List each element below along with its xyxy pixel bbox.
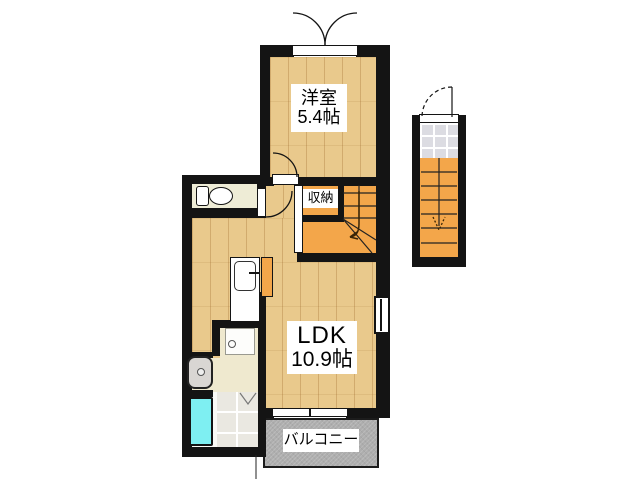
exterior-stairs-floor bbox=[420, 158, 458, 257]
wall bbox=[182, 175, 266, 184]
bathtub-icon bbox=[189, 397, 213, 446]
landing-floor bbox=[265, 183, 295, 218]
exterior-stair-wall bbox=[412, 115, 420, 266]
ldk-window-mullion bbox=[380, 299, 382, 331]
exterior-landing-tiles bbox=[420, 123, 458, 158]
closet-name: 収納 bbox=[307, 191, 333, 205]
exterior-stair-wall bbox=[458, 115, 466, 266]
wall bbox=[298, 177, 390, 186]
wall bbox=[182, 447, 266, 457]
closet-label: 収納 bbox=[303, 189, 338, 208]
western-room-label: 洋室 5.4帖 bbox=[291, 84, 347, 132]
wall bbox=[376, 45, 390, 418]
floorplan-canvas: 洋室 5.4帖 収納 LDK 10.9帖 バルコニー bbox=[0, 0, 640, 480]
french-door-threshold bbox=[292, 45, 358, 56]
ldk-size: 10.9帖 bbox=[291, 349, 353, 372]
balcony-label: バルコニー bbox=[283, 429, 359, 452]
kitchen-counter bbox=[261, 257, 273, 297]
entry-door-threshold bbox=[419, 114, 459, 123]
closet-sliding-door bbox=[294, 185, 303, 253]
western-room-name: 洋室 bbox=[301, 89, 337, 108]
wall bbox=[303, 215, 343, 222]
wall bbox=[297, 253, 390, 262]
washer-drain-icon bbox=[228, 340, 236, 348]
exterior-stair-wall bbox=[412, 257, 466, 267]
wall bbox=[182, 208, 266, 218]
balcony-name: バルコニー bbox=[284, 432, 359, 448]
wall bbox=[182, 390, 213, 397]
kitchen-sink-icon bbox=[234, 261, 256, 291]
western-room-size: 5.4帖 bbox=[297, 108, 340, 127]
entry-door-arc bbox=[422, 87, 452, 117]
bathroom-tile-floor bbox=[217, 392, 258, 447]
kitchen-faucet-icon bbox=[249, 272, 260, 274]
toilet-fixture-icon bbox=[209, 187, 233, 205]
ldk-name: LDK bbox=[297, 323, 347, 349]
ldk-window bbox=[374, 296, 390, 334]
toilet-tank-icon bbox=[196, 186, 209, 206]
western-room-door bbox=[272, 174, 299, 185]
wall bbox=[346, 408, 390, 418]
balcony-slider-rail bbox=[309, 408, 311, 417]
wall bbox=[260, 45, 270, 185]
toilet-door bbox=[257, 188, 266, 217]
wall bbox=[212, 320, 220, 356]
ldk-label: LDK 10.9帖 bbox=[287, 321, 357, 374]
french-door-arcs bbox=[293, 13, 357, 45]
vanity-drain-icon bbox=[197, 368, 205, 376]
